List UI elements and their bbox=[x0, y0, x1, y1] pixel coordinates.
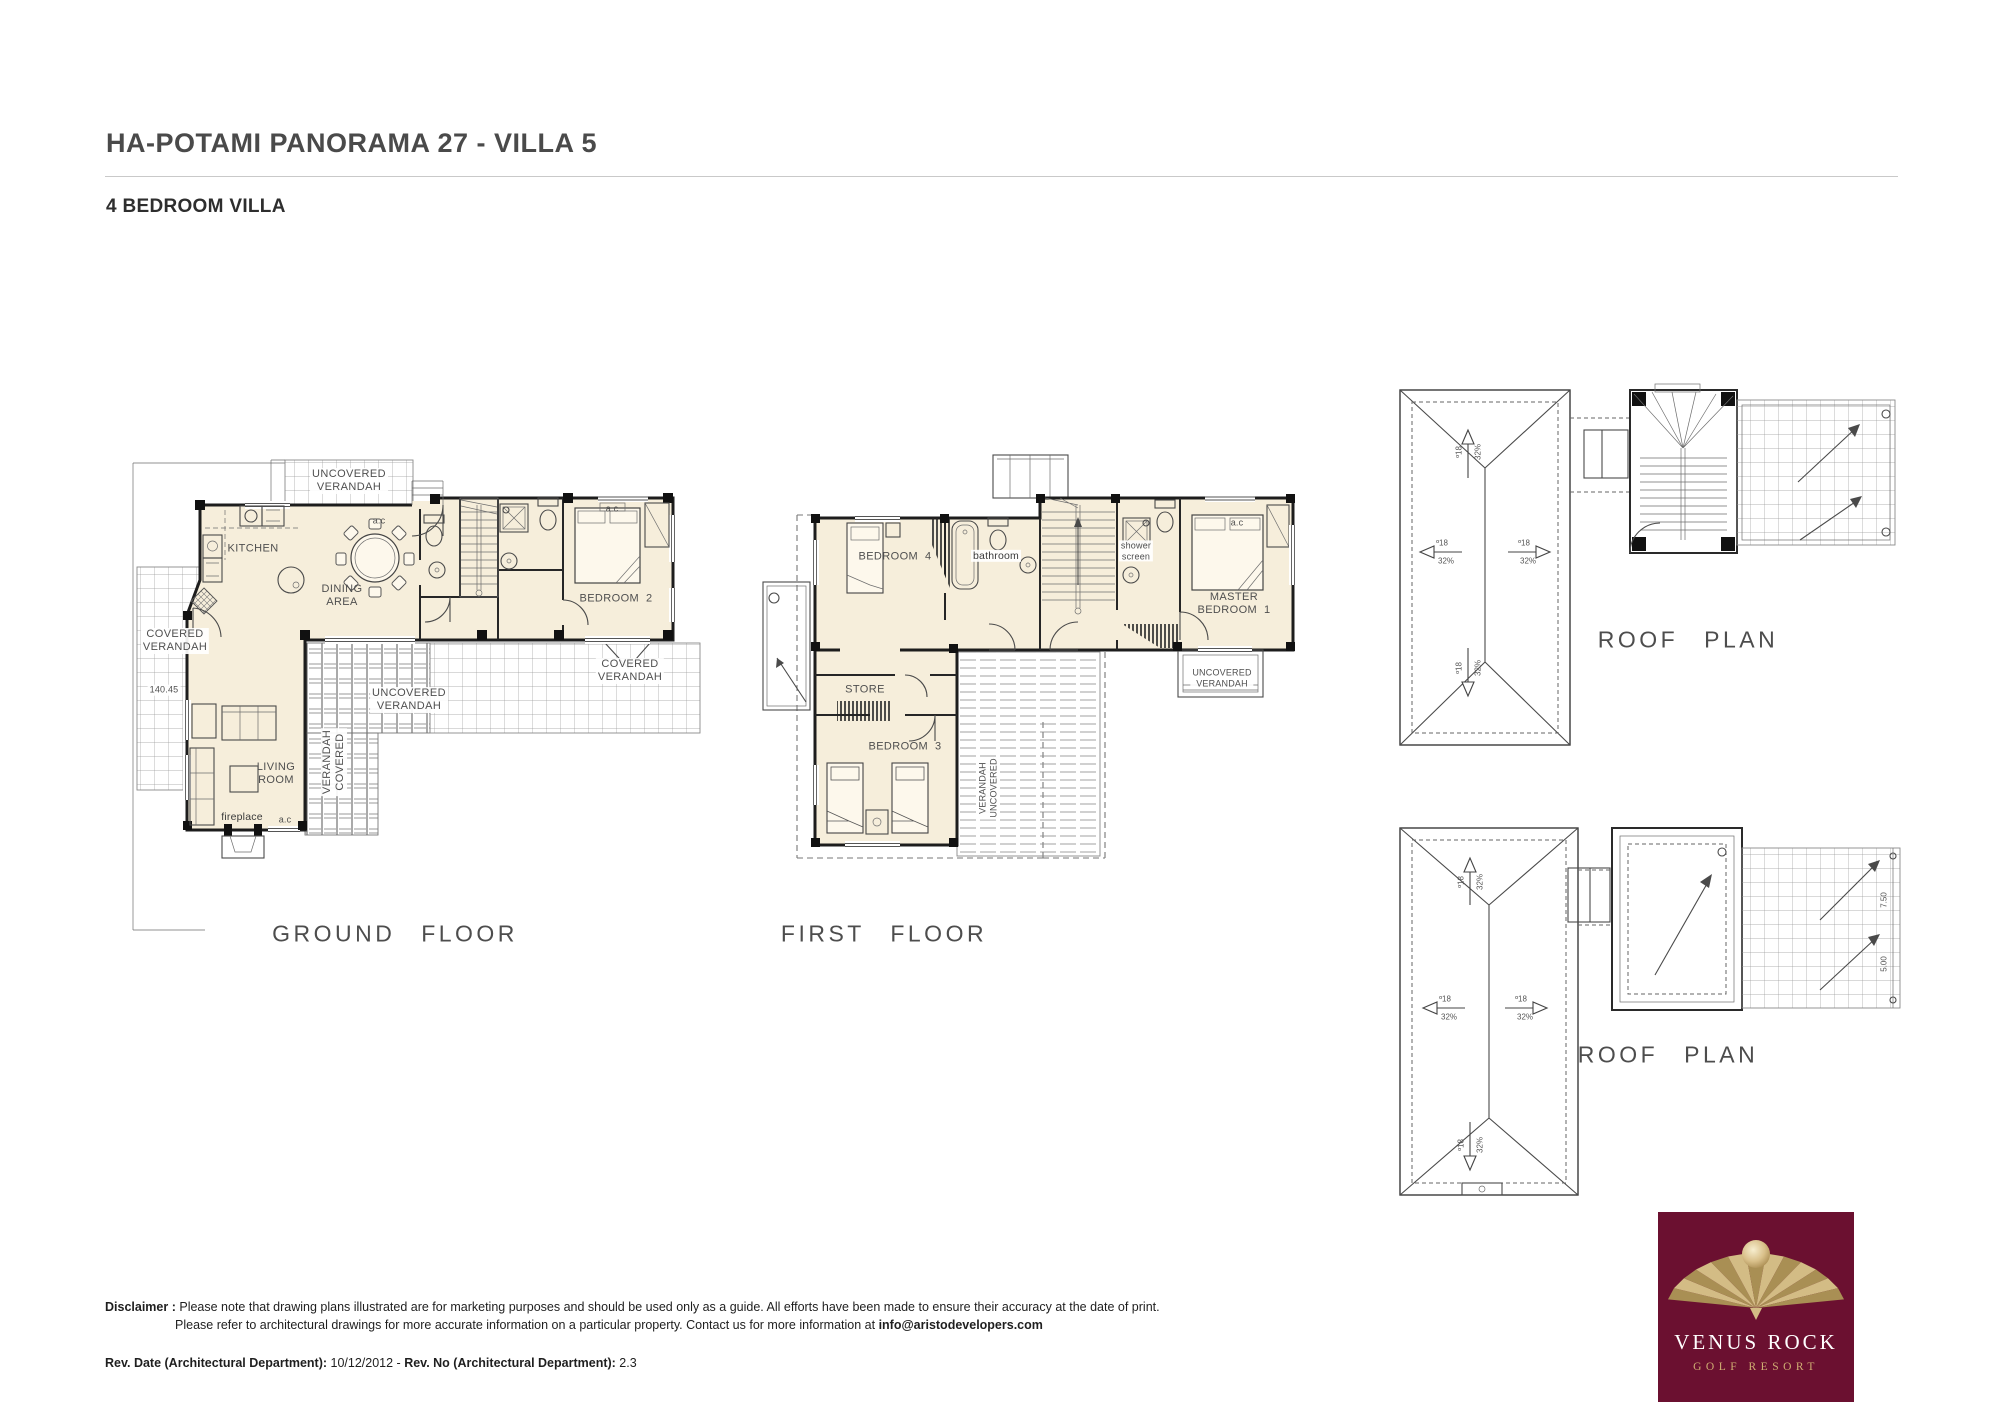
left-balcony bbox=[763, 582, 810, 710]
label-dining-area: DINING AREA bbox=[322, 583, 363, 609]
label-ac-master: a.c bbox=[1231, 518, 1244, 529]
label-uncovered-verandah-mid: UNCOVERED VERANDAH bbox=[370, 687, 448, 713]
slope-pct: 32% bbox=[1438, 556, 1454, 565]
disclaimer-line2: Please refer to architectural drawings f… bbox=[175, 1318, 879, 1332]
roof-pergola-top bbox=[1737, 400, 1895, 545]
roof-plan-top bbox=[1400, 384, 1895, 745]
slope-pct: 32% bbox=[1473, 444, 1482, 460]
label-ac-dining: a.c bbox=[373, 516, 386, 527]
caption-roof-plan-bottom: ROOF PLAN bbox=[1578, 1042, 1758, 1069]
rev-no-value: 2.3 bbox=[616, 1356, 637, 1370]
slope-deg: º18 bbox=[1515, 994, 1527, 1003]
slope-pct: 32% bbox=[1475, 1137, 1484, 1153]
pergola-dim-1: 7.50 bbox=[1879, 892, 1888, 908]
first-floor-terrace bbox=[957, 652, 1100, 856]
slope-deg: º18 bbox=[1439, 994, 1451, 1003]
slope-deg: º18 bbox=[1436, 538, 1448, 547]
floor-plan-drawings: .w{stroke:#1d1d1d;stroke-width:3;fill:no… bbox=[0, 0, 2000, 1414]
page-title: HA-POTAMI PANORAMA 27 - VILLA 5 bbox=[106, 128, 597, 159]
disclaimer-line1: Please note that drawing plans illustrat… bbox=[179, 1300, 1159, 1314]
label-uncovered-verandah-master: UNCOVERED VERANDAH bbox=[1190, 667, 1253, 688]
label-ac-bedroom2: a.c bbox=[606, 504, 619, 515]
slope-pct: 32% bbox=[1520, 556, 1536, 565]
rev-date-label: Rev. Date (Architectural Department): bbox=[105, 1356, 327, 1370]
caption-roof-plan-top: ROOF PLAN bbox=[1598, 627, 1778, 654]
stair-tower-roof bbox=[1630, 384, 1737, 553]
label-bedroom2: BEDROOM 2 bbox=[579, 593, 652, 606]
slope-deg: º18 bbox=[1518, 538, 1530, 547]
rev-no-label: Rev. No (Architectural Department): bbox=[404, 1356, 616, 1370]
label-verandah-vertical-ff: VERANDAH UNCOVERED bbox=[977, 756, 998, 819]
label-ac-living: a.c bbox=[279, 815, 292, 826]
label-master-bedroom: MASTER BEDROOM 1 bbox=[1197, 591, 1270, 617]
disclaimer: Disclaimer : Please note that drawing pl… bbox=[105, 1298, 1205, 1334]
slope-pct: 32% bbox=[1517, 1012, 1533, 1021]
logo-fan-icon bbox=[1658, 1212, 1854, 1332]
venus-rock-logo: VENUS ROCK GOLF RESORT bbox=[1658, 1212, 1854, 1402]
label-covered-verandah-right: COVERED VERANDAH bbox=[596, 658, 664, 684]
slope-deg: º18 bbox=[1456, 1139, 1465, 1151]
page-subtitle: 4 BEDROOM VILLA bbox=[106, 196, 286, 218]
slope-deg: º18 bbox=[1456, 876, 1465, 888]
label-bathroom: bathroom bbox=[971, 550, 1021, 562]
label-store: STORE bbox=[845, 684, 885, 697]
disclaimer-email: info@aristodevelopers.com bbox=[879, 1318, 1043, 1332]
label-covered-verandah-left: COVERED VERANDAH bbox=[141, 628, 209, 654]
header-divider bbox=[105, 176, 1898, 177]
slope-deg: º18 bbox=[1454, 446, 1463, 458]
flat-roof bbox=[1612, 828, 1742, 1010]
label-level: 140.45 bbox=[148, 685, 181, 696]
caption-ground-floor: GROUND FLOOR bbox=[272, 921, 518, 948]
label-uncovered-verandah-top: UNCOVERED VERANDAH bbox=[310, 468, 388, 494]
label-bedroom3: BEDROOM 3 bbox=[868, 741, 941, 754]
label-fireplace: fireplace bbox=[221, 811, 263, 823]
label-shower-screen: shower screen bbox=[1119, 540, 1153, 561]
covered-verandah-right-tiles bbox=[430, 643, 700, 733]
first-floor-plan bbox=[763, 455, 1297, 858]
roof-pergola-bottom bbox=[1742, 848, 1900, 1008]
label-pergola-vertical: VERANDAH COVERED bbox=[321, 728, 347, 796]
slope-pct: 32% bbox=[1473, 660, 1482, 676]
label-bedroom4: BEDROOM 4 bbox=[858, 551, 931, 564]
logo-subtitle: GOLF RESORT bbox=[1693, 1361, 1819, 1373]
revision-line: Rev. Date (Architectural Department): 10… bbox=[105, 1356, 637, 1370]
label-kitchen: KITCHEN bbox=[227, 543, 278, 556]
caption-first-floor: FIRST FLOOR bbox=[781, 921, 987, 948]
disclaimer-label: Disclaimer : bbox=[105, 1300, 176, 1314]
plan-sheet: .w{stroke:#1d1d1d;stroke-width:3;fill:no… bbox=[0, 0, 2000, 1414]
slope-deg: º18 bbox=[1454, 662, 1463, 674]
slope-pct: 32% bbox=[1475, 874, 1484, 890]
pergola-dim-2: 5.00 bbox=[1879, 956, 1888, 972]
label-living-room: LIVING ROOM bbox=[257, 761, 295, 787]
rev-date-value: 10/12/2012 - bbox=[327, 1356, 404, 1370]
slope-pct: 32% bbox=[1441, 1012, 1457, 1021]
logo-name: VENUS ROCK bbox=[1674, 1330, 1838, 1355]
